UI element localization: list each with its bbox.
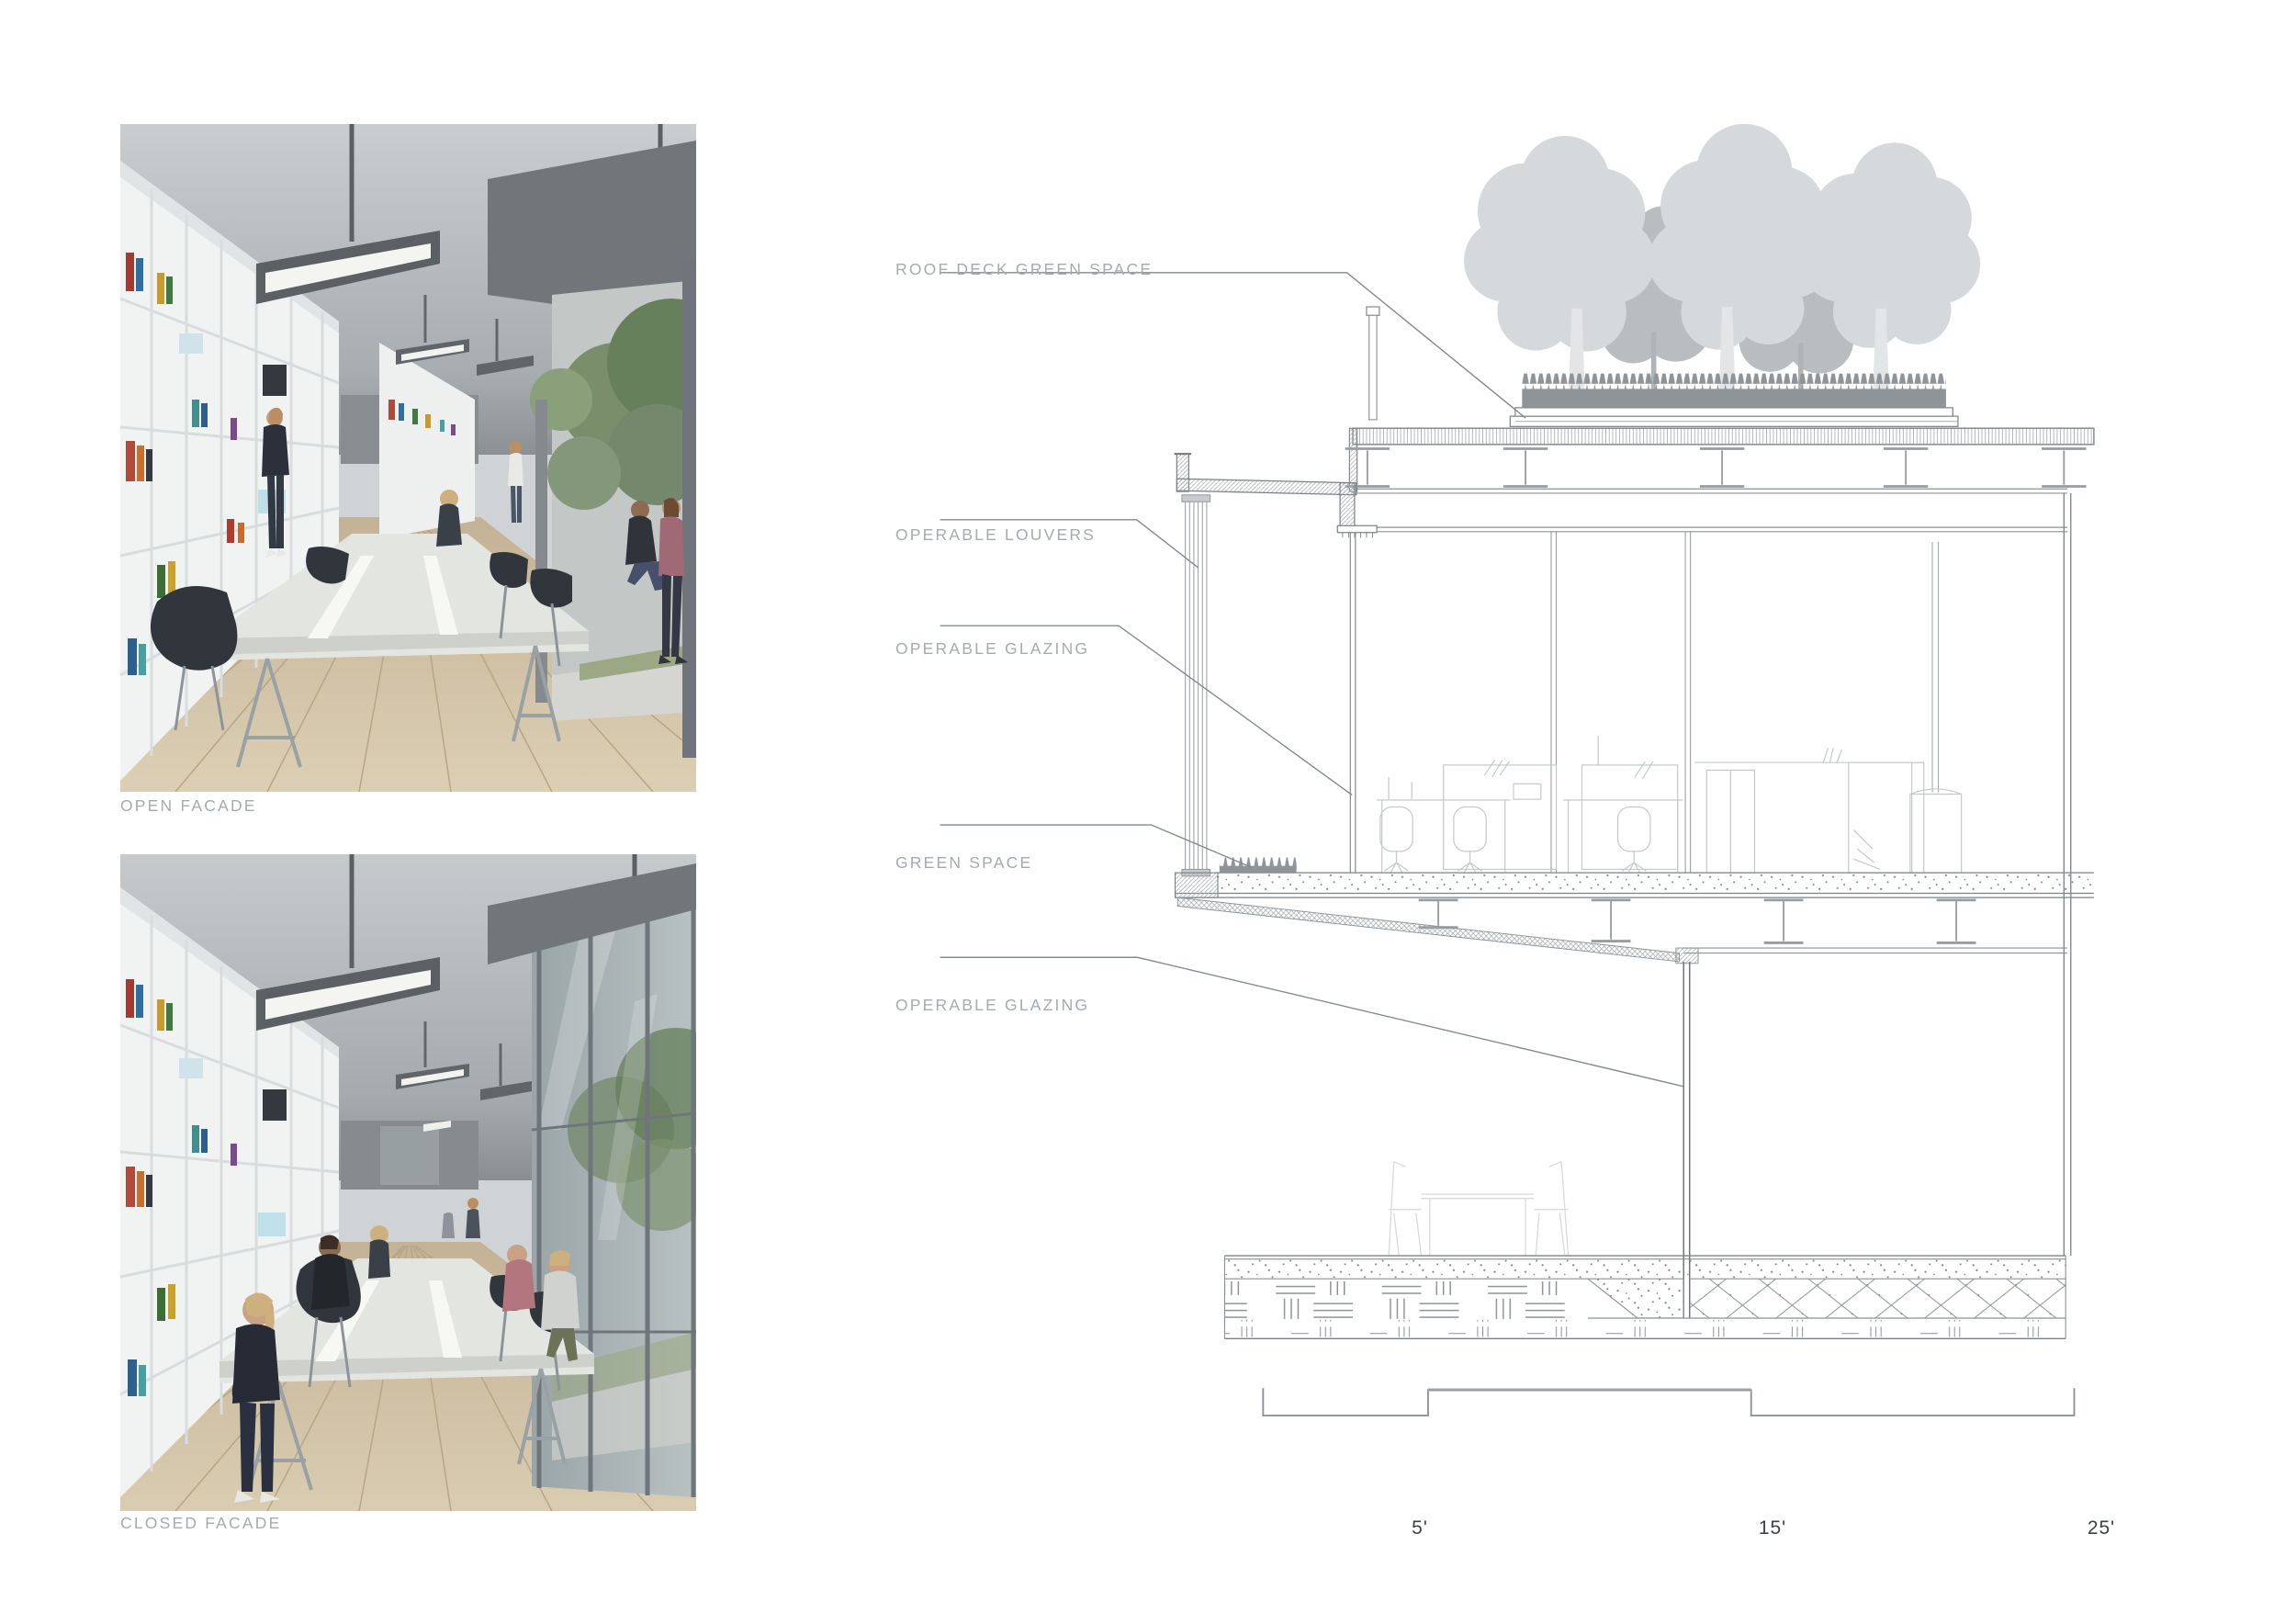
lower-floor-furniture xyxy=(1389,1162,1568,1256)
far-figures xyxy=(442,1198,480,1238)
kitchen xyxy=(1694,748,1961,873)
scale-label-25ft: 25' xyxy=(2074,1517,2129,1539)
presentation-sheet: OPEN FACADE xyxy=(0,0,2296,1624)
roof-planter xyxy=(1510,374,1958,427)
open-facade-image xyxy=(120,124,696,792)
seated-blonde xyxy=(436,490,462,547)
scale-label-5ft: 5' xyxy=(1392,1517,1447,1539)
callout-operable-louvers: OPERABLE LOUVERS xyxy=(895,525,1096,545)
louver-stack xyxy=(1182,495,1210,876)
office-chair-1 xyxy=(1380,806,1412,873)
seated-pink-right xyxy=(502,1245,535,1312)
right-wall xyxy=(2064,493,2070,1256)
seated-blonde-left xyxy=(368,1225,390,1279)
leader-roof-deck-green-space xyxy=(940,273,1525,418)
scale-label-15ft: 15' xyxy=(1745,1517,1800,1539)
upper-floor-furniture xyxy=(1377,736,1962,873)
rendering-open-facade xyxy=(120,124,696,792)
interior-partitions xyxy=(1551,532,1691,873)
callout-operable-glazing-upper: OPERABLE GLAZING xyxy=(895,639,1089,659)
section-drawing xyxy=(872,110,2204,1589)
office-chair-2 xyxy=(1454,806,1486,873)
leader-operable-glazing-lower xyxy=(940,957,1684,1087)
upper-glazing xyxy=(1350,533,1356,873)
ceiling-lines xyxy=(1353,489,2067,532)
closed-facade-image xyxy=(120,854,696,1511)
kitchen-flue xyxy=(1932,542,1939,793)
caption-closed-facade: CLOSED FACADE xyxy=(120,1514,281,1533)
sloped-soffit xyxy=(1177,897,2067,964)
ground xyxy=(1224,1256,2065,1338)
roof-joists xyxy=(1345,449,2087,487)
rendering-closed-facade xyxy=(120,854,696,1511)
callout-roof-deck-green-space: ROOF DECK GREEN SPACE xyxy=(895,260,1153,279)
office-chair-3 xyxy=(1618,806,1650,873)
roof-mast xyxy=(1367,307,1379,420)
callout-operable-glazing-lower: OPERABLE GLAZING xyxy=(895,996,1089,1015)
caption-open-facade: OPEN FACADE xyxy=(120,796,257,816)
roof-trees xyxy=(1464,124,1980,406)
scale-bar xyxy=(1263,1388,2074,1415)
callout-green-space: GREEN SPACE xyxy=(895,853,1032,873)
